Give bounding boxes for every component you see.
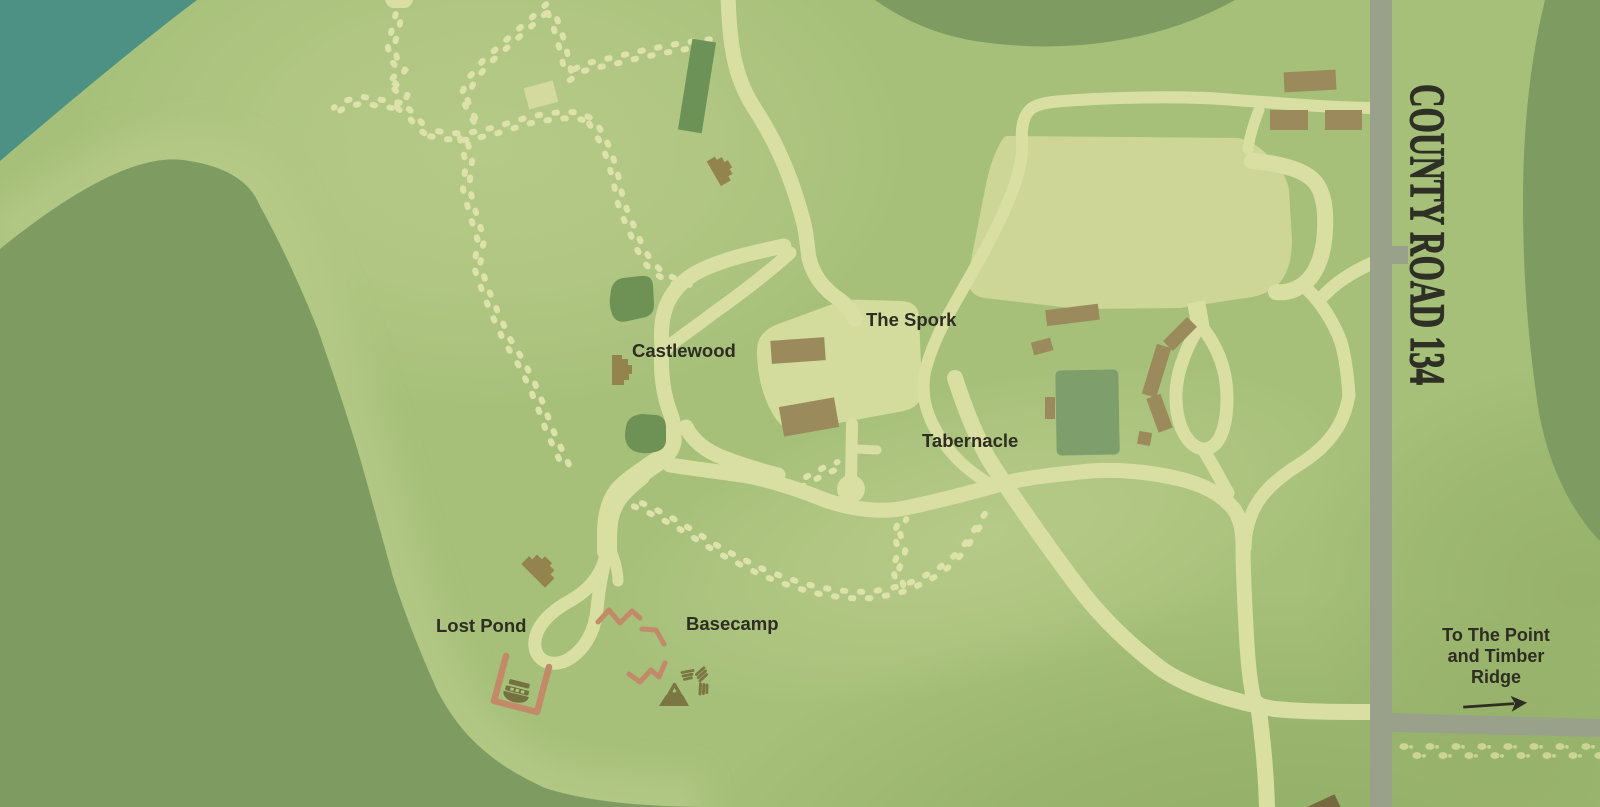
svg-text:Castlewood: Castlewood [632, 340, 736, 361]
svg-text:and Timber: and Timber [1448, 646, 1545, 666]
svg-text:COUNTY ROAD 134: COUNTY ROAD 134 [1400, 84, 1456, 385]
svg-text:Tabernacle: Tabernacle [922, 430, 1018, 451]
svg-text:Ridge: Ridge [1471, 667, 1521, 687]
svg-text:To The Point: To The Point [1442, 625, 1550, 645]
svg-text:Basecamp: Basecamp [686, 613, 779, 634]
svg-text:Lost Pond: Lost Pond [436, 615, 526, 636]
svg-text:The Spork: The Spork [866, 309, 957, 330]
